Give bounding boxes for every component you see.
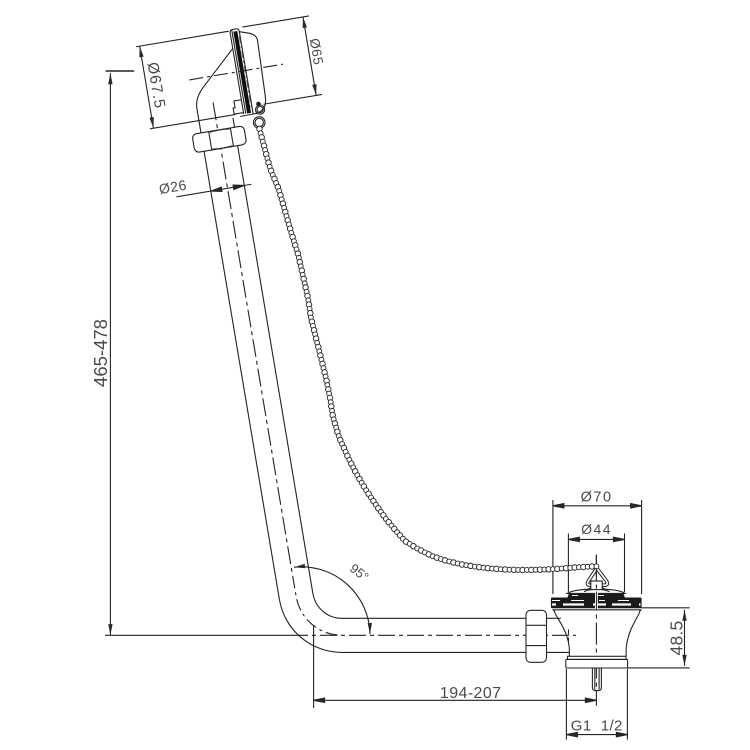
svg-text:Ø26: Ø26 xyxy=(158,177,188,197)
svg-text:G1 1/2: G1 1/2 xyxy=(571,718,623,735)
svg-text:194-207: 194-207 xyxy=(440,685,502,702)
svg-text:95°: 95° xyxy=(347,560,372,584)
svg-text:48.5: 48.5 xyxy=(667,621,687,656)
svg-text:Ø65: Ø65 xyxy=(307,37,326,66)
svg-text:465-478: 465-478 xyxy=(90,319,111,387)
svg-text:Ø70: Ø70 xyxy=(581,490,613,506)
svg-text:Ø67.5: Ø67.5 xyxy=(144,61,169,110)
svg-text:Ø44: Ø44 xyxy=(581,521,612,537)
